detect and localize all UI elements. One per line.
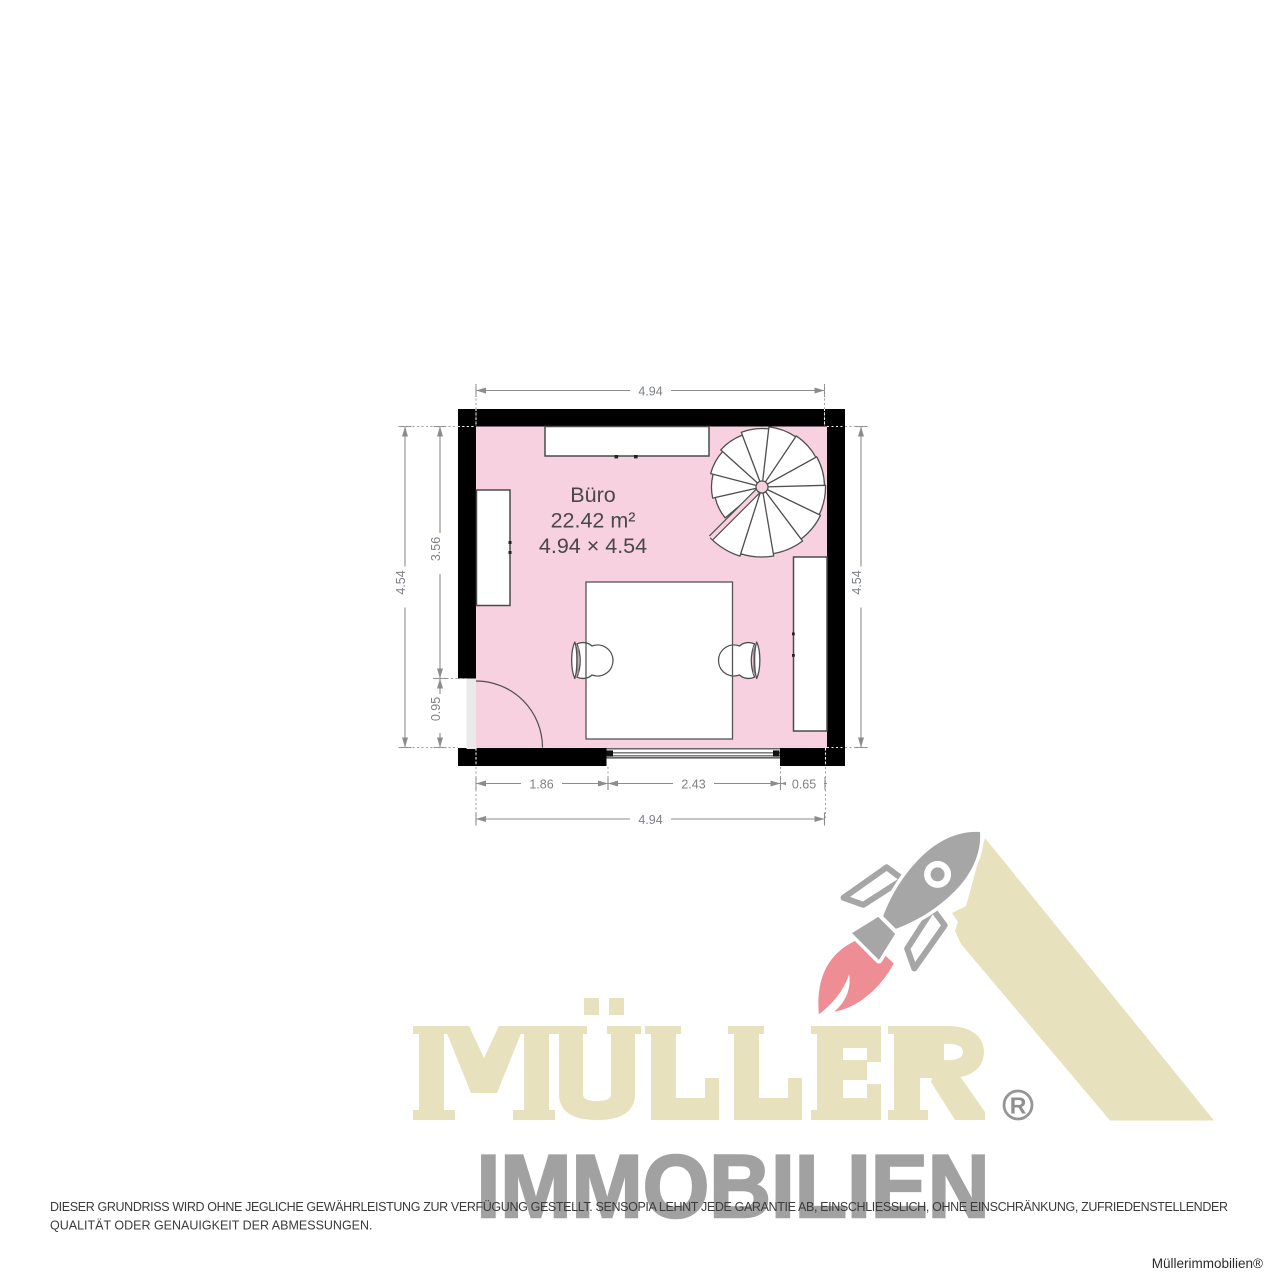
- svg-text:3.56: 3.56: [429, 537, 443, 561]
- svg-text:QUALITÄT ODER GENAUIGKEIT DER: QUALITÄT ODER GENAUIGKEIT DER ABMESSUNGE…: [50, 1219, 373, 1233]
- svg-text:4.94 × 4.54: 4.94 × 4.54: [539, 534, 647, 558]
- svg-text:0.65: 0.65: [792, 778, 816, 792]
- svg-text:22.42 m²: 22.42 m²: [551, 509, 636, 533]
- svg-text:Büro: Büro: [570, 483, 615, 507]
- svg-text:1.86: 1.86: [529, 778, 553, 792]
- svg-text:0.95: 0.95: [429, 697, 443, 721]
- svg-text:4.94: 4.94: [638, 813, 662, 827]
- svg-text:4.54: 4.54: [850, 570, 864, 594]
- svg-text:DIESER GRUNDRISS WIRD OHNE JEG: DIESER GRUNDRISS WIRD OHNE JEGLICHE GEWÄ…: [50, 1200, 1228, 1214]
- svg-text:Müllerimmobilien®: Müllerimmobilien®: [1152, 1256, 1263, 1271]
- svg-text:R: R: [1010, 1093, 1027, 1119]
- svg-text:4.54: 4.54: [394, 570, 408, 594]
- svg-text:2.43: 2.43: [681, 778, 705, 792]
- svg-text:IMMOBILIEN: IMMOBILIEN: [477, 1136, 990, 1236]
- svg-text:4.94: 4.94: [638, 385, 662, 399]
